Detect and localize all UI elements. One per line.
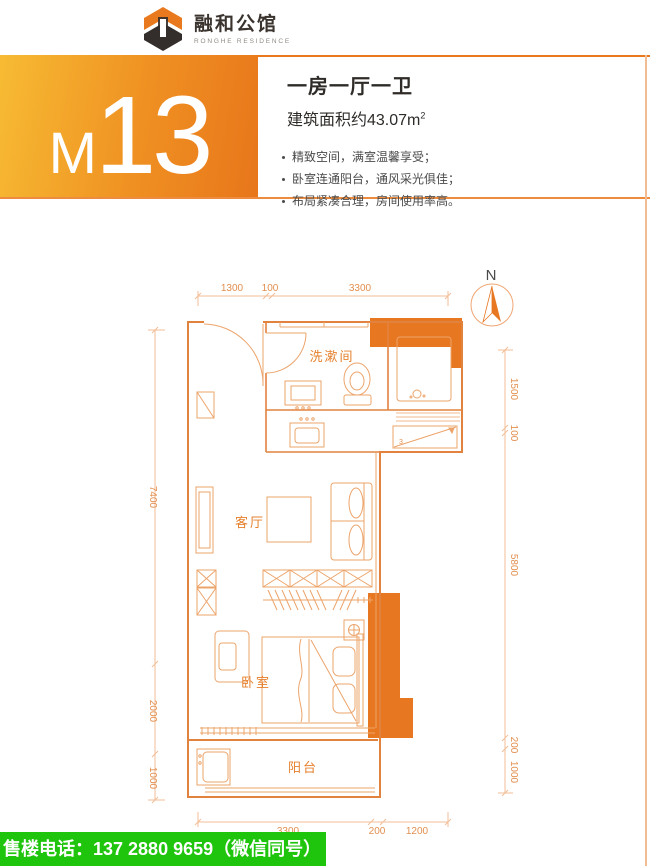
room-label-washroom: 洗漱间 xyxy=(309,349,354,364)
toilet xyxy=(344,363,371,405)
furniture xyxy=(196,337,460,785)
entry-cabinet xyxy=(197,392,214,418)
floor-plan: 3 洗漱间 客厅 卧室 阳台 1300 100 3300 3300 200 12… xyxy=(0,0,650,866)
balcony-window xyxy=(205,788,375,792)
flyer-page: 融和公馆 RONGHE RESIDENCE M13 一房一厅一卫 建筑面积约43… xyxy=(0,0,650,866)
dim-right-5: 1000 xyxy=(508,761,519,784)
sofa xyxy=(331,483,372,560)
room-label-balcony: 阳台 xyxy=(288,760,318,775)
bed xyxy=(262,634,363,726)
dimension-lines xyxy=(148,291,513,827)
column-mid-right xyxy=(368,593,413,738)
wardrobe xyxy=(197,570,372,615)
column-top-right xyxy=(370,318,462,368)
dim-right-2: 100 xyxy=(508,425,519,442)
dim-bottom-2: 200 xyxy=(369,826,386,837)
room-label-bedroom: 卧室 xyxy=(241,675,271,690)
dim-top-1: 1300 xyxy=(221,283,244,294)
dim-bottom-3: 1200 xyxy=(406,826,429,837)
counter-sink xyxy=(290,418,324,447)
north-label: N xyxy=(486,267,497,284)
dim-left-2: 2000 xyxy=(147,700,158,723)
washing-machine xyxy=(197,749,230,785)
north-arrow-icon: N xyxy=(471,267,513,326)
dim-left-3: 1000 xyxy=(147,767,158,790)
washroom-sink xyxy=(285,381,321,409)
dim-top-3: 3300 xyxy=(349,283,372,294)
entry-door-arc xyxy=(204,324,263,386)
clothes-rail xyxy=(263,590,373,610)
coffee-table xyxy=(267,497,311,542)
room-labels: 洗漱间 客厅 卧室 阳台 xyxy=(235,349,355,775)
structural-columns xyxy=(368,318,462,738)
washroom-door-arc xyxy=(266,333,306,373)
dim-right-3: 5800 xyxy=(508,554,519,577)
storage-mark: 3 xyxy=(399,439,403,446)
storage-cabinet xyxy=(393,413,460,448)
dim-left-1: 7400 xyxy=(147,486,158,509)
tv-cabinet xyxy=(196,487,213,553)
phone-text: 售楼电话：137 2880 9659（微信同号） xyxy=(3,839,321,859)
dim-right-4: 200 xyxy=(508,737,519,754)
dim-right-1: 1500 xyxy=(508,378,519,401)
doors xyxy=(204,324,306,386)
dim-top-2: 100 xyxy=(262,283,279,294)
room-label-living: 客厅 xyxy=(235,515,265,530)
phone-bar: 售楼电话：137 2880 9659（微信同号） xyxy=(0,832,326,866)
